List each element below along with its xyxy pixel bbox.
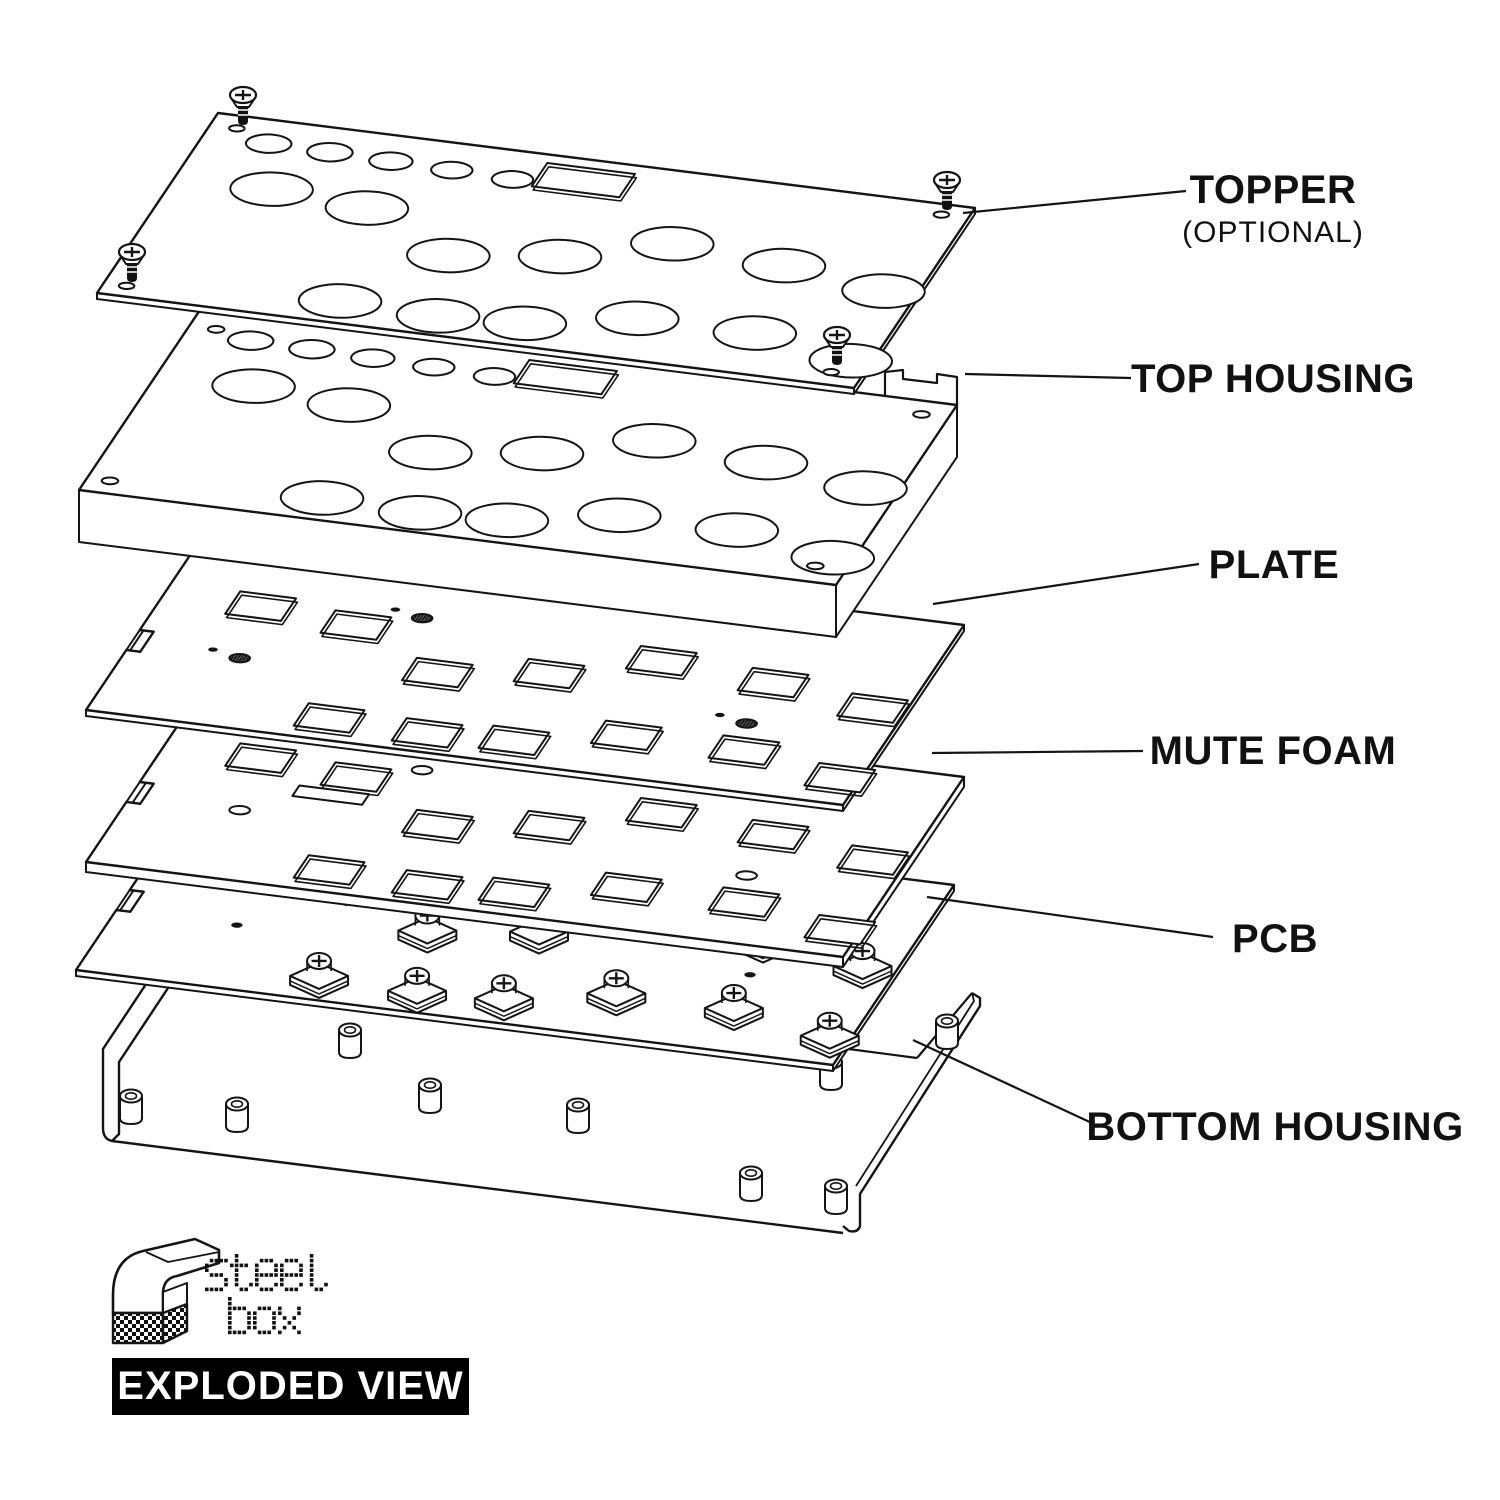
logo-text-line1 — [205, 1254, 328, 1291]
leader-line-bottom-housing — [913, 1040, 1094, 1124]
label-topper-note: (OPTIONAL) — [1182, 212, 1364, 254]
leader-line-top-housing — [965, 374, 1131, 378]
label-top-housing-text: TOP HOUSING — [1131, 357, 1415, 401]
label-topper: TOPPER (OPTIONAL) — [1182, 168, 1364, 254]
label-bottom-housing: BOTTOM HOUSING — [1086, 1105, 1463, 1149]
leader-line-topper — [963, 191, 1186, 213]
label-mute-foam-text: MUTE FOAM — [1150, 729, 1397, 773]
steel-box-logo-icon — [113, 1239, 219, 1343]
standoff — [936, 1015, 958, 1050]
exploded-view-badge-text: EXPLODED VIEW — [117, 1364, 463, 1408]
label-plate: PLATE — [1209, 543, 1340, 587]
label-bottom-housing-text: BOTTOM HOUSING — [1086, 1105, 1463, 1149]
leader-line-plate — [933, 564, 1199, 604]
exploded-view-diagram: TOPPER (OPTIONAL) TOP HOUSING PLATE MUTE… — [0, 0, 1500, 1500]
standoff — [339, 1024, 361, 1059]
standoff — [226, 1098, 248, 1133]
leader-line-pcb — [927, 897, 1213, 937]
standoff — [740, 1167, 762, 1202]
logo-text-line2 — [228, 1297, 301, 1334]
standoff — [825, 1180, 847, 1215]
standoff — [419, 1079, 441, 1114]
label-top-housing: TOP HOUSING — [1131, 357, 1415, 401]
standoff — [567, 1099, 589, 1134]
standoff — [120, 1090, 142, 1125]
label-plate-text: PLATE — [1209, 543, 1340, 587]
leader-line-mute-foam — [932, 751, 1143, 753]
label-topper-text: TOPPER — [1190, 168, 1357, 212]
label-mute-foam: MUTE FOAM — [1150, 729, 1397, 773]
label-pcb-text: PCB — [1232, 917, 1318, 961]
exploded-view-badge: EXPLODED VIEW — [112, 1358, 469, 1415]
label-pcb: PCB — [1232, 917, 1318, 961]
steel-box-logo — [113, 1239, 328, 1343]
